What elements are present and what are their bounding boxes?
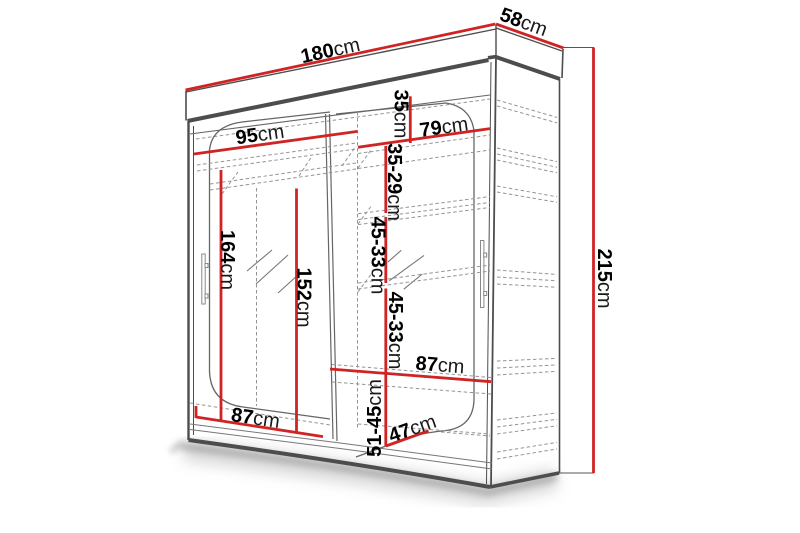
svg-text:35cm: 35cm xyxy=(390,90,412,139)
svg-text:87cm: 87cm xyxy=(415,353,465,379)
svg-text:152cm: 152cm xyxy=(293,267,315,327)
svg-text:51-45cm: 51-45cm xyxy=(364,379,386,457)
svg-text:164cm: 164cm xyxy=(216,230,238,290)
svg-text:45-33cm: 45-33cm xyxy=(384,292,406,370)
svg-text:45-33cm: 45-33cm xyxy=(367,217,389,295)
svg-text:35-29cm: 35-29cm xyxy=(383,143,405,221)
svg-text:215cm: 215cm xyxy=(593,248,615,308)
